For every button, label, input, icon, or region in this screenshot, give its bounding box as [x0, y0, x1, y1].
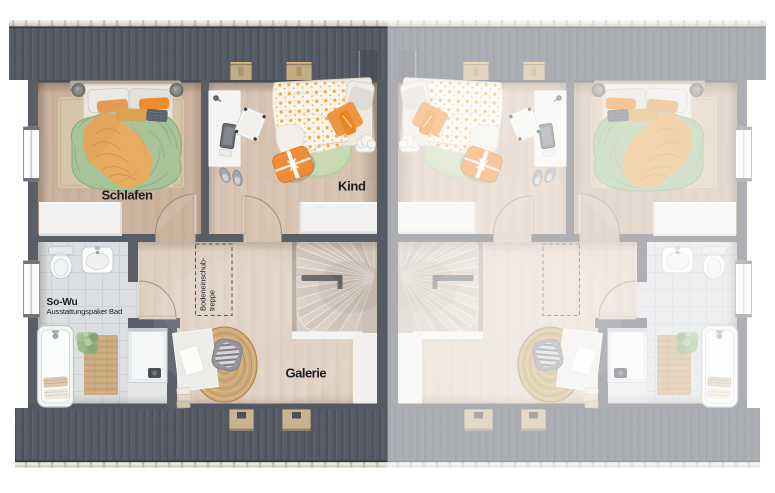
svg-text:Galerie: Galerie	[286, 366, 327, 381]
svg-text:Bodeneinschub-: Bodeneinschub-	[199, 257, 208, 311]
svg-text:Kind: Kind	[338, 179, 366, 194]
svg-text:treppe: treppe	[208, 290, 217, 311]
svg-text:Ausstattungspaket Bad: Ausstattungspaket Bad	[47, 307, 123, 316]
svg-text:Schlafen: Schlafen	[102, 188, 153, 203]
